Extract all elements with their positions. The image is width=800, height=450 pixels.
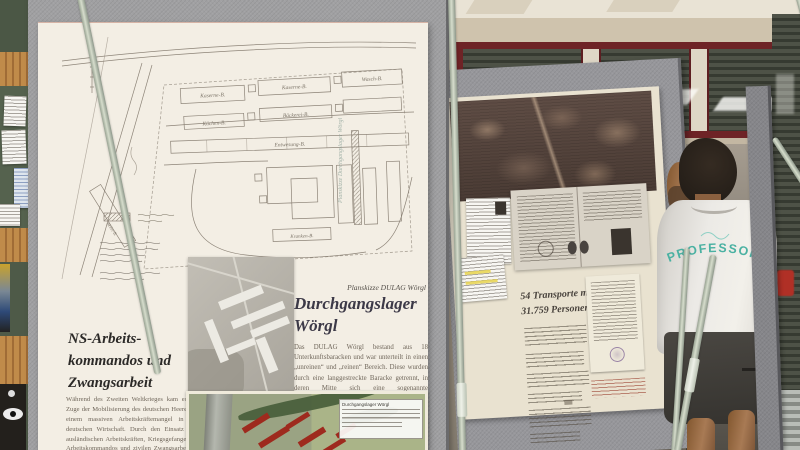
pinned-paper — [1, 130, 26, 165]
camp-aerial-photo-modern: Durchgangslager Wörgl — [186, 391, 428, 450]
fold-line — [576, 187, 581, 267]
pinned-paper — [3, 96, 26, 127]
portrait-photo — [495, 202, 506, 215]
paragraph-lines — [526, 351, 585, 368]
paragraph-lines — [528, 391, 582, 404]
river-road — [203, 391, 233, 450]
ceiling-beam — [606, 0, 679, 12]
plan-caption: Planskizze DULAG Wörgl — [278, 283, 426, 292]
ceiling-beam — [466, 0, 533, 14]
plan-label: Kranken-B. — [289, 234, 313, 240]
document-form — [466, 197, 511, 264]
fingerprint — [579, 240, 589, 253]
plan-label: Kaserne-B. — [281, 84, 307, 91]
plan-label: Kaserne-B. — [199, 92, 225, 99]
plan-side-note: Planskizze Durchgangslager Wörgl — [338, 53, 344, 203]
eye-poster — [0, 384, 26, 450]
pinned-paper — [0, 204, 20, 226]
section-title-right: Durchgangslager Wörgl — [294, 293, 430, 337]
colorful-poster-sliver — [0, 264, 10, 332]
paragraph-lines — [527, 371, 590, 388]
red-overlay-building — [258, 425, 290, 448]
plan-label: Küchen-B. — [201, 120, 226, 127]
title-line: Durchgangslager — [294, 293, 430, 315]
map-legend-box: Durchgangslager Wörgl — [339, 399, 423, 439]
right-poster-paragraphs — [524, 325, 592, 446]
portrait-photo — [611, 228, 632, 255]
yellow-highlight — [466, 279, 498, 284]
person-left-leg — [687, 418, 715, 450]
person-right-leg — [728, 410, 755, 450]
document-text — [583, 189, 643, 222]
title-line: NS-Arbeits- — [68, 329, 208, 351]
document-id-spread — [510, 183, 650, 270]
red-overlay-building — [298, 427, 327, 448]
paragraph-lines — [524, 325, 587, 348]
legend-lines — [342, 409, 420, 419]
yellow-highlight — [465, 270, 491, 275]
title-line: Wörgl — [294, 315, 430, 337]
eye-pupil — [10, 411, 16, 417]
photo-caption-red — [591, 377, 646, 398]
section-title-left: NS-Arbeits- kommandos und Zwangsarbeit — [68, 329, 208, 394]
plan-label: Entwesung-B. — [273, 142, 305, 149]
document-text — [591, 280, 638, 342]
shorts-pocket — [742, 368, 756, 371]
document-note — [457, 254, 507, 302]
section-body-left: Während des Zweiten Weltkrieges kam es i… — [66, 395, 198, 450]
document-letter — [585, 274, 644, 373]
purple-stamp — [609, 347, 625, 363]
camp-aerial-photo-bw — [188, 257, 294, 397]
dark-field — [188, 349, 244, 397]
page-number-mark — [564, 400, 572, 405]
exhibition-room-photo: 54 Transporte mit 31.759 Personen — [0, 0, 800, 450]
map-legend-title: Durchgangslager Wörgl — [342, 402, 420, 407]
window-reflection — [776, 74, 794, 114]
barrack-building — [226, 338, 256, 356]
plan-label: Wasch-B. — [362, 76, 383, 83]
pole-sleeve — [456, 383, 467, 417]
plan-label: Wohn-B. — [106, 221, 119, 237]
legend-lines — [342, 422, 402, 429]
white-mark — [8, 390, 15, 397]
tshirt-collar — [691, 198, 737, 214]
poster-right: 54 Transporte mit 31.759 Personen — [443, 86, 677, 420]
title-line: kommandos und — [68, 351, 208, 373]
paragraph-lines — [529, 407, 592, 428]
camp-plan-drawing: Kaserne-B. Kaserne-B. Wasch-B. Küchen-B.… — [48, 29, 420, 283]
